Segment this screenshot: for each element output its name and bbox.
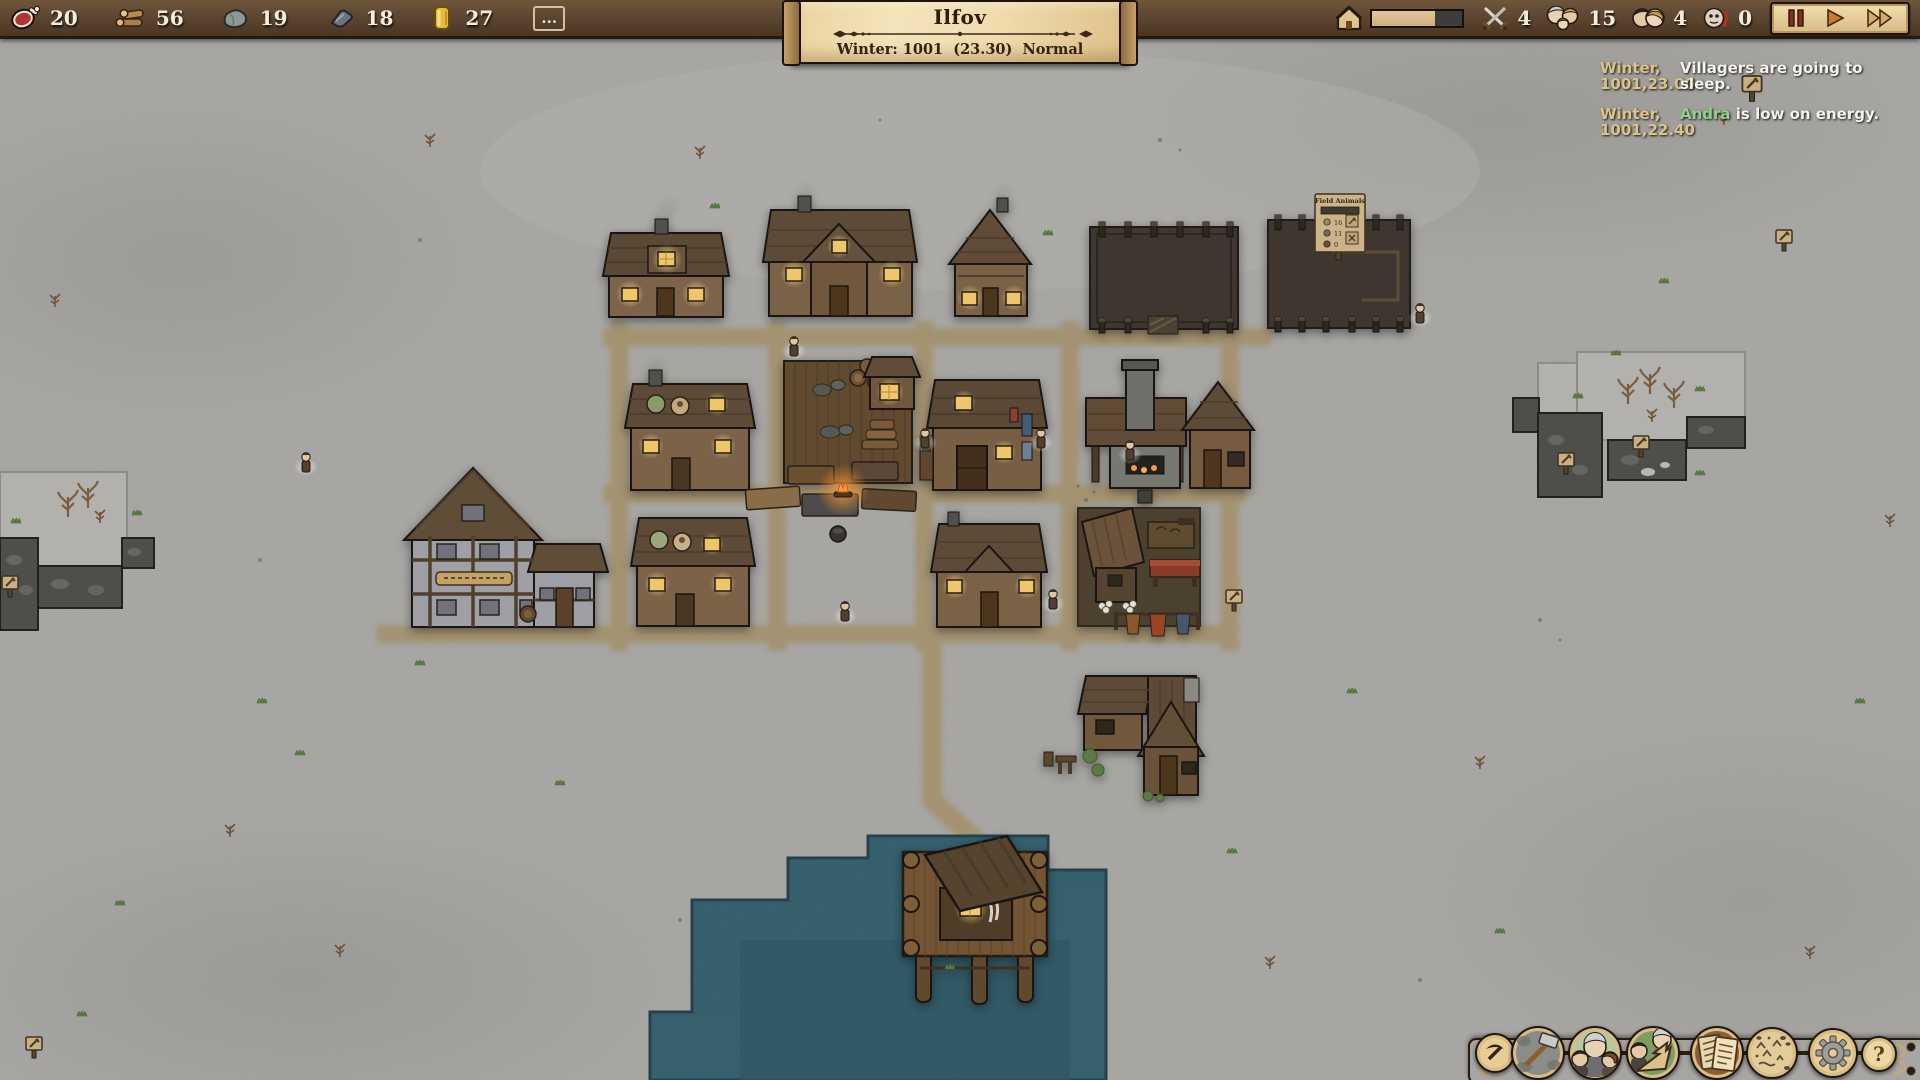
pickaxe-icon bbox=[1482, 1040, 1508, 1066]
military-swords-icon bbox=[1480, 5, 1510, 32]
notification-feed: Winter, 1001,23.00 Villagers are going t… bbox=[1600, 60, 1912, 138]
jobs-button[interactable] bbox=[1475, 1033, 1515, 1073]
gold-icon bbox=[429, 4, 455, 32]
game-screen: Field Animals 16 11 0 bbox=[0, 0, 1920, 1080]
notification-time: Winter, 1001,23.00 bbox=[1600, 60, 1680, 92]
population-growth-icon bbox=[1629, 1029, 1677, 1077]
hammer-icon bbox=[1514, 1029, 1562, 1077]
notification-message: Andra is low on energy. bbox=[1680, 106, 1912, 122]
housing-progress-fill bbox=[1372, 11, 1435, 26]
starving-icon bbox=[1701, 4, 1731, 32]
wood-icon bbox=[114, 5, 146, 31]
play-icon bbox=[1825, 8, 1845, 28]
banner-divider-ornament bbox=[815, 29, 1105, 39]
world-map-button[interactable] bbox=[1746, 1027, 1798, 1079]
villagers-icon bbox=[1571, 1029, 1619, 1077]
map-icon bbox=[1749, 1030, 1795, 1076]
dusk-overlay bbox=[0, 0, 1920, 1080]
stone-count: 19 bbox=[260, 6, 288, 30]
resources-more-button[interactable]: ... bbox=[533, 6, 565, 31]
resource-meat: 20 bbox=[10, 5, 78, 31]
meat-count: 20 bbox=[50, 6, 78, 30]
iron-count: 18 bbox=[366, 6, 394, 30]
fast-forward-button[interactable] bbox=[1860, 8, 1900, 28]
starving-count: 0 bbox=[1738, 6, 1752, 30]
fast-forward-icon bbox=[1866, 8, 1894, 28]
population-count: 15 bbox=[1588, 6, 1616, 30]
help-button[interactable]: ? bbox=[1861, 1036, 1897, 1072]
notification[interactable]: Winter, 1001,22.40 Andra is low on energ… bbox=[1600, 106, 1912, 138]
iron-icon bbox=[324, 5, 356, 31]
population-button[interactable] bbox=[1626, 1026, 1680, 1080]
pause-icon bbox=[1787, 9, 1805, 27]
military-count: 4 bbox=[1517, 6, 1531, 30]
resource-iron: 18 bbox=[324, 5, 394, 31]
reports-button[interactable] bbox=[1690, 1026, 1744, 1080]
play-button[interactable] bbox=[1819, 8, 1851, 28]
wood-count: 56 bbox=[156, 6, 184, 30]
village-name: Ilfov bbox=[933, 6, 986, 28]
resource-gold: 27 bbox=[429, 4, 493, 32]
documents-icon bbox=[1694, 1030, 1740, 1076]
resource-stone: 19 bbox=[220, 5, 288, 31]
notification-time: Winter, 1001,22.40 bbox=[1600, 106, 1680, 138]
couples-count: 4 bbox=[1673, 6, 1687, 30]
speed-control-panel bbox=[1770, 2, 1910, 35]
date-weather-status: Winter: 1001 (23.30) Normal bbox=[837, 41, 1084, 59]
gear-icon bbox=[1813, 1033, 1853, 1073]
settings-button[interactable] bbox=[1808, 1028, 1858, 1078]
build-button[interactable] bbox=[1511, 1026, 1565, 1080]
notification-message: Villagers are going to sleep. bbox=[1680, 60, 1912, 92]
pause-button[interactable] bbox=[1781, 9, 1811, 27]
village-banner: Ilfov Winter: 1001 (23.30) Normal bbox=[790, 0, 1130, 64]
notification[interactable]: Winter, 1001,23.00 Villagers are going t… bbox=[1600, 60, 1912, 92]
meat-icon bbox=[10, 5, 40, 31]
housing-icon bbox=[1335, 5, 1363, 32]
stone-icon bbox=[220, 5, 250, 31]
gold-count: 27 bbox=[465, 6, 493, 30]
resource-wood: 56 bbox=[114, 5, 184, 31]
toolbar-pin bbox=[1906, 1066, 1916, 1076]
couples-icon bbox=[1630, 4, 1666, 32]
village-map[interactable]: Field Animals 16 11 0 bbox=[0, 0, 1920, 1080]
housing-progress-bar bbox=[1370, 9, 1464, 28]
villagers-button[interactable] bbox=[1568, 1026, 1622, 1080]
population-icon bbox=[1545, 4, 1581, 32]
toolbar-pin bbox=[1906, 1042, 1916, 1052]
